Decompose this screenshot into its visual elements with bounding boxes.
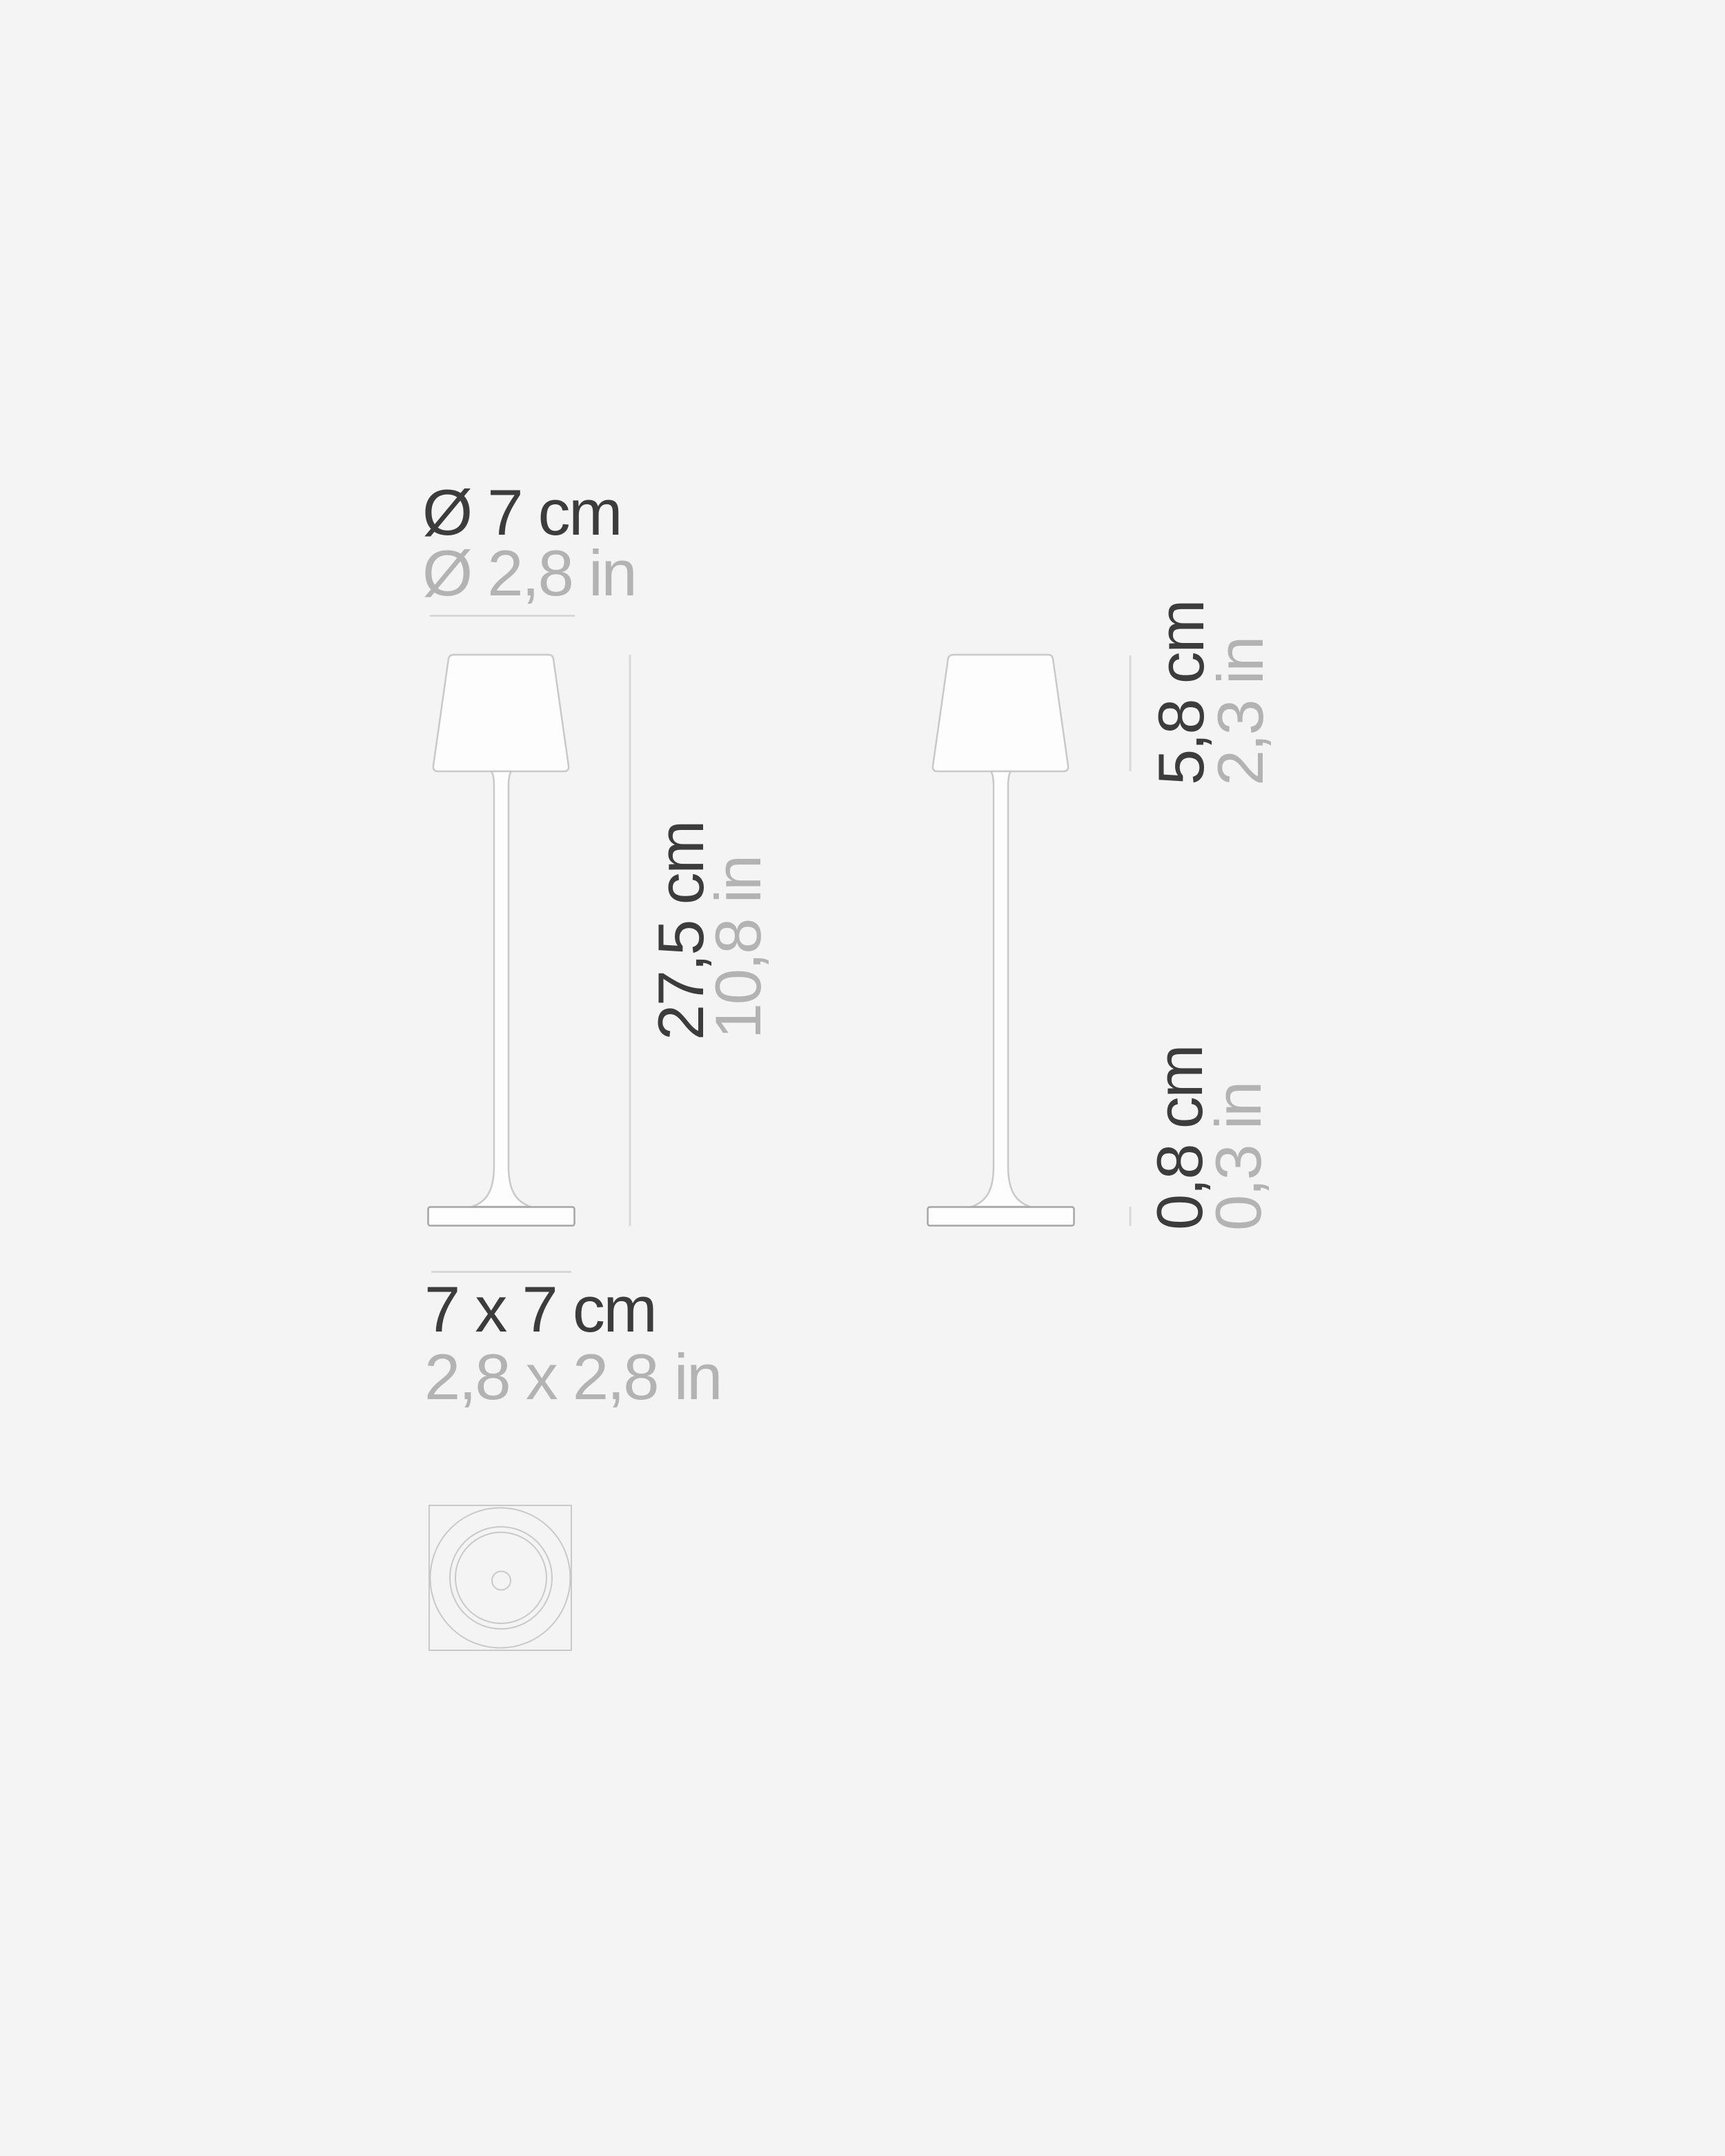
top-view-ring-outer-circle	[450, 1527, 552, 1629]
lamp-technical-drawing	[0, 0, 1725, 2156]
lamp-shade-left	[433, 655, 569, 771]
total-height-imperial: 10,8 in	[706, 856, 771, 1039]
top-view-outer-circle	[431, 1508, 571, 1648]
shade-diameter-metric: Ø 7 cm	[422, 482, 635, 543]
footprint-metric: 7 x 7 cm	[424, 1276, 721, 1343]
lamp-shade-right	[933, 655, 1068, 771]
footprint-imperial: 2,8 x 2,8 in	[424, 1343, 721, 1411]
lamp-top-view	[429, 1505, 571, 1650]
shade-diameter-imperial: Ø 2,8 in	[422, 543, 635, 604]
lamp-stem-left	[472, 771, 531, 1207]
shade-height-imperial: 2,3 in	[1208, 637, 1273, 786]
top-view-center-circle	[492, 1572, 511, 1590]
lamp-front-view-left	[428, 655, 575, 1226]
lamp-base-left	[428, 1207, 575, 1226]
lamp-stem-right	[972, 771, 1030, 1207]
base-height-imperial: 0,3 in	[1206, 1082, 1271, 1231]
lamp-front-view-right	[928, 655, 1074, 1226]
footprint-label: 7 x 7 cm 2,8 x 2,8 in	[424, 1276, 721, 1411]
lamp-base-right	[928, 1207, 1074, 1226]
top-view-ring-inner-circle	[455, 1532, 546, 1623]
shade-diameter-label: Ø 7 cm Ø 2,8 in	[422, 482, 635, 604]
dimension-diagram: Ø 7 cm Ø 2,8 in 7 x 7 cm 2,8 x 2,8 in 27…	[0, 0, 1725, 2156]
